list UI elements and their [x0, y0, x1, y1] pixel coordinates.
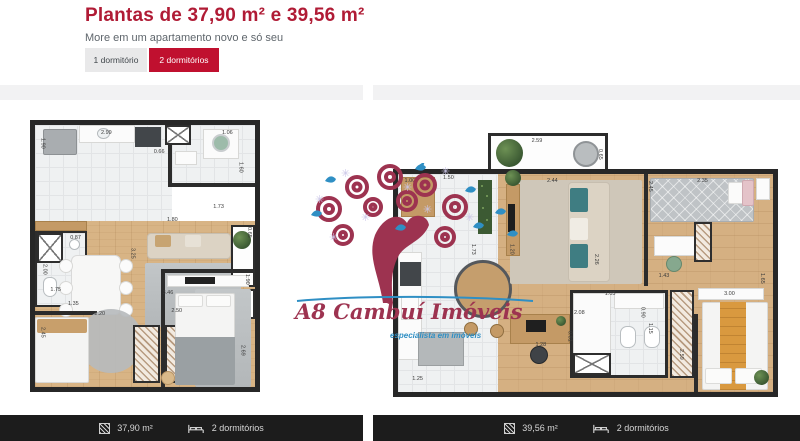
- pouf: [161, 371, 175, 385]
- sofa-cushion: [570, 244, 588, 268]
- svg-text:✳: ✳: [315, 193, 324, 206]
- shelf: [694, 222, 712, 262]
- washer-door: [212, 134, 230, 152]
- bed-blanket: [175, 337, 235, 385]
- shower-door: [573, 353, 611, 375]
- vertical-garden: [478, 180, 492, 234]
- sofa-cushion: [570, 188, 588, 212]
- console: [35, 221, 87, 231]
- dimension-label: 0.87: [70, 235, 81, 241]
- dining-table-round: [454, 260, 512, 318]
- laptop: [526, 320, 546, 332]
- bed-icon: [592, 423, 610, 434]
- dimension-label: 2.69: [240, 345, 246, 356]
- svg-text:✳: ✳: [361, 211, 370, 224]
- tab-2-dormitorios[interactable]: 2 dormitórios: [149, 48, 219, 72]
- card-top-strip-right: [373, 85, 800, 100]
- dimension-label: 0.65: [246, 227, 252, 238]
- dimension-label: 2.59: [532, 138, 543, 144]
- dimension-label: 1.25: [412, 376, 423, 382]
- dimension-label: 0.81: [566, 331, 572, 342]
- nightstand: [756, 178, 770, 200]
- area-value: 37,90 m²: [117, 423, 153, 433]
- wall: [35, 311, 97, 315]
- area-value: 39,56 m²: [522, 423, 558, 433]
- plant: [496, 139, 523, 167]
- area-icon: [99, 423, 110, 434]
- apartment-body: [393, 169, 778, 397]
- bedrooms-value: 2 dormitórios: [212, 423, 264, 433]
- bed-icon: [187, 423, 205, 434]
- dimension-label: 0.90: [639, 307, 645, 318]
- dimension-label: 1.06: [222, 130, 233, 136]
- wall: [694, 314, 698, 392]
- sofa-cushion: [185, 235, 201, 247]
- dimension-label: 2.45: [39, 327, 45, 338]
- plant: [556, 316, 566, 326]
- desk-chair: [530, 346, 548, 364]
- dimension-label: 1.28: [535, 342, 546, 348]
- bedrooms-value: 2 dormitórios: [617, 423, 669, 433]
- dimension-label: 0.66: [154, 149, 165, 155]
- dimension-label: 2.45: [647, 181, 653, 192]
- tab-1-dormitorio[interactable]: 1 dormitório: [85, 48, 147, 72]
- stool: [490, 324, 504, 338]
- dimension-label: 2.20: [94, 311, 105, 317]
- wardrobe: [133, 325, 160, 383]
- page-subtitle: More em um apartamento novo e só seu: [85, 32, 283, 44]
- dimension-label: 0.65: [597, 149, 603, 160]
- svg-text:✳: ✳: [329, 231, 338, 244]
- dimension-label: 1.00: [405, 178, 416, 184]
- kitchen-island: [418, 332, 464, 366]
- bed-pillow: [705, 368, 732, 384]
- kitchen-sink: [401, 296, 419, 320]
- svg-text:✳: ✳: [341, 167, 350, 180]
- floorplan-37-90: 1.902.990.661.061.601.731.800.650.872.00…: [30, 120, 260, 392]
- dimension-label: 2.08: [574, 310, 585, 316]
- dimension-label: 3.00: [724, 291, 735, 297]
- dimension-label: 1.15: [647, 323, 653, 334]
- dimension-label: 1.90: [39, 138, 45, 149]
- dimension-label: 1.35: [68, 301, 79, 307]
- dimension-label: 3.25: [130, 248, 136, 259]
- dimension-label: 1.73: [470, 244, 476, 255]
- dimension-label: 1.05: [605, 291, 616, 297]
- dimension-label: 1.73: [213, 204, 224, 210]
- chair: [119, 259, 133, 273]
- area-info: 37,90 m²: [99, 423, 153, 434]
- bed-pillow: [742, 180, 754, 206]
- plan-info-bar-left: 37,90 m² 2 dormitórios: [0, 415, 363, 441]
- bedrooms-info: 2 dormitórios: [592, 423, 669, 434]
- plan-info-bar-right: 39,56 m² 2 dormitórios: [373, 415, 800, 441]
- page-title: Plantas de 37,90 m² e 39,56 m²: [85, 5, 365, 27]
- tv: [508, 204, 515, 232]
- tv: [185, 277, 215, 284]
- dimension-label: 1.90: [244, 274, 250, 285]
- dimension-label: 2.99: [101, 130, 112, 136]
- chair: [119, 281, 133, 295]
- sofa-cushion: [570, 218, 588, 240]
- dimension-label: 1.80: [167, 217, 178, 223]
- dimension-label: 3.46: [163, 290, 174, 296]
- dimension-label: 1.43: [659, 273, 670, 279]
- dimension-label: 2.44: [547, 178, 558, 184]
- shower: [37, 233, 63, 263]
- wall: [165, 269, 255, 273]
- shaft: [165, 125, 191, 145]
- toilet: [620, 326, 636, 348]
- laundry-sink: [175, 151, 197, 165]
- sofa-cushion: [155, 235, 171, 247]
- area-icon: [504, 423, 515, 434]
- card-top-strip-left: [0, 85, 363, 100]
- bed-pillow: [178, 295, 203, 307]
- dimension-label: 2.59: [678, 349, 684, 360]
- egg-chair: [573, 141, 599, 167]
- chair: [59, 259, 73, 273]
- plant: [505, 170, 521, 186]
- desk-chair: [666, 256, 682, 272]
- dimension-label: 1.65: [759, 273, 765, 284]
- dimension-label: 2.26: [593, 254, 599, 265]
- dimension-label: 1.20: [509, 244, 515, 255]
- bed-pillow: [206, 295, 231, 307]
- plant: [754, 370, 769, 385]
- fridge: [43, 129, 77, 155]
- dimension-label: 2.00: [42, 264, 48, 275]
- dimension-label: 1.60: [237, 162, 243, 173]
- dimension-label: 2.35: [697, 178, 708, 184]
- dimension-label: 1.75: [50, 287, 61, 293]
- wardrobe: [670, 290, 694, 378]
- bedrooms-info: 2 dormitórios: [187, 423, 264, 434]
- dimension-label: 2.50: [171, 308, 182, 314]
- floorplan-39-56: 2.590.651.001.502.442.452.351.731.202.26…: [393, 133, 778, 397]
- stove: [400, 262, 421, 286]
- area-info: 39,56 m²: [504, 423, 558, 434]
- wall: [172, 183, 255, 187]
- stove: [135, 127, 161, 147]
- dimension-label: 1.50: [443, 175, 454, 181]
- stool: [464, 322, 478, 336]
